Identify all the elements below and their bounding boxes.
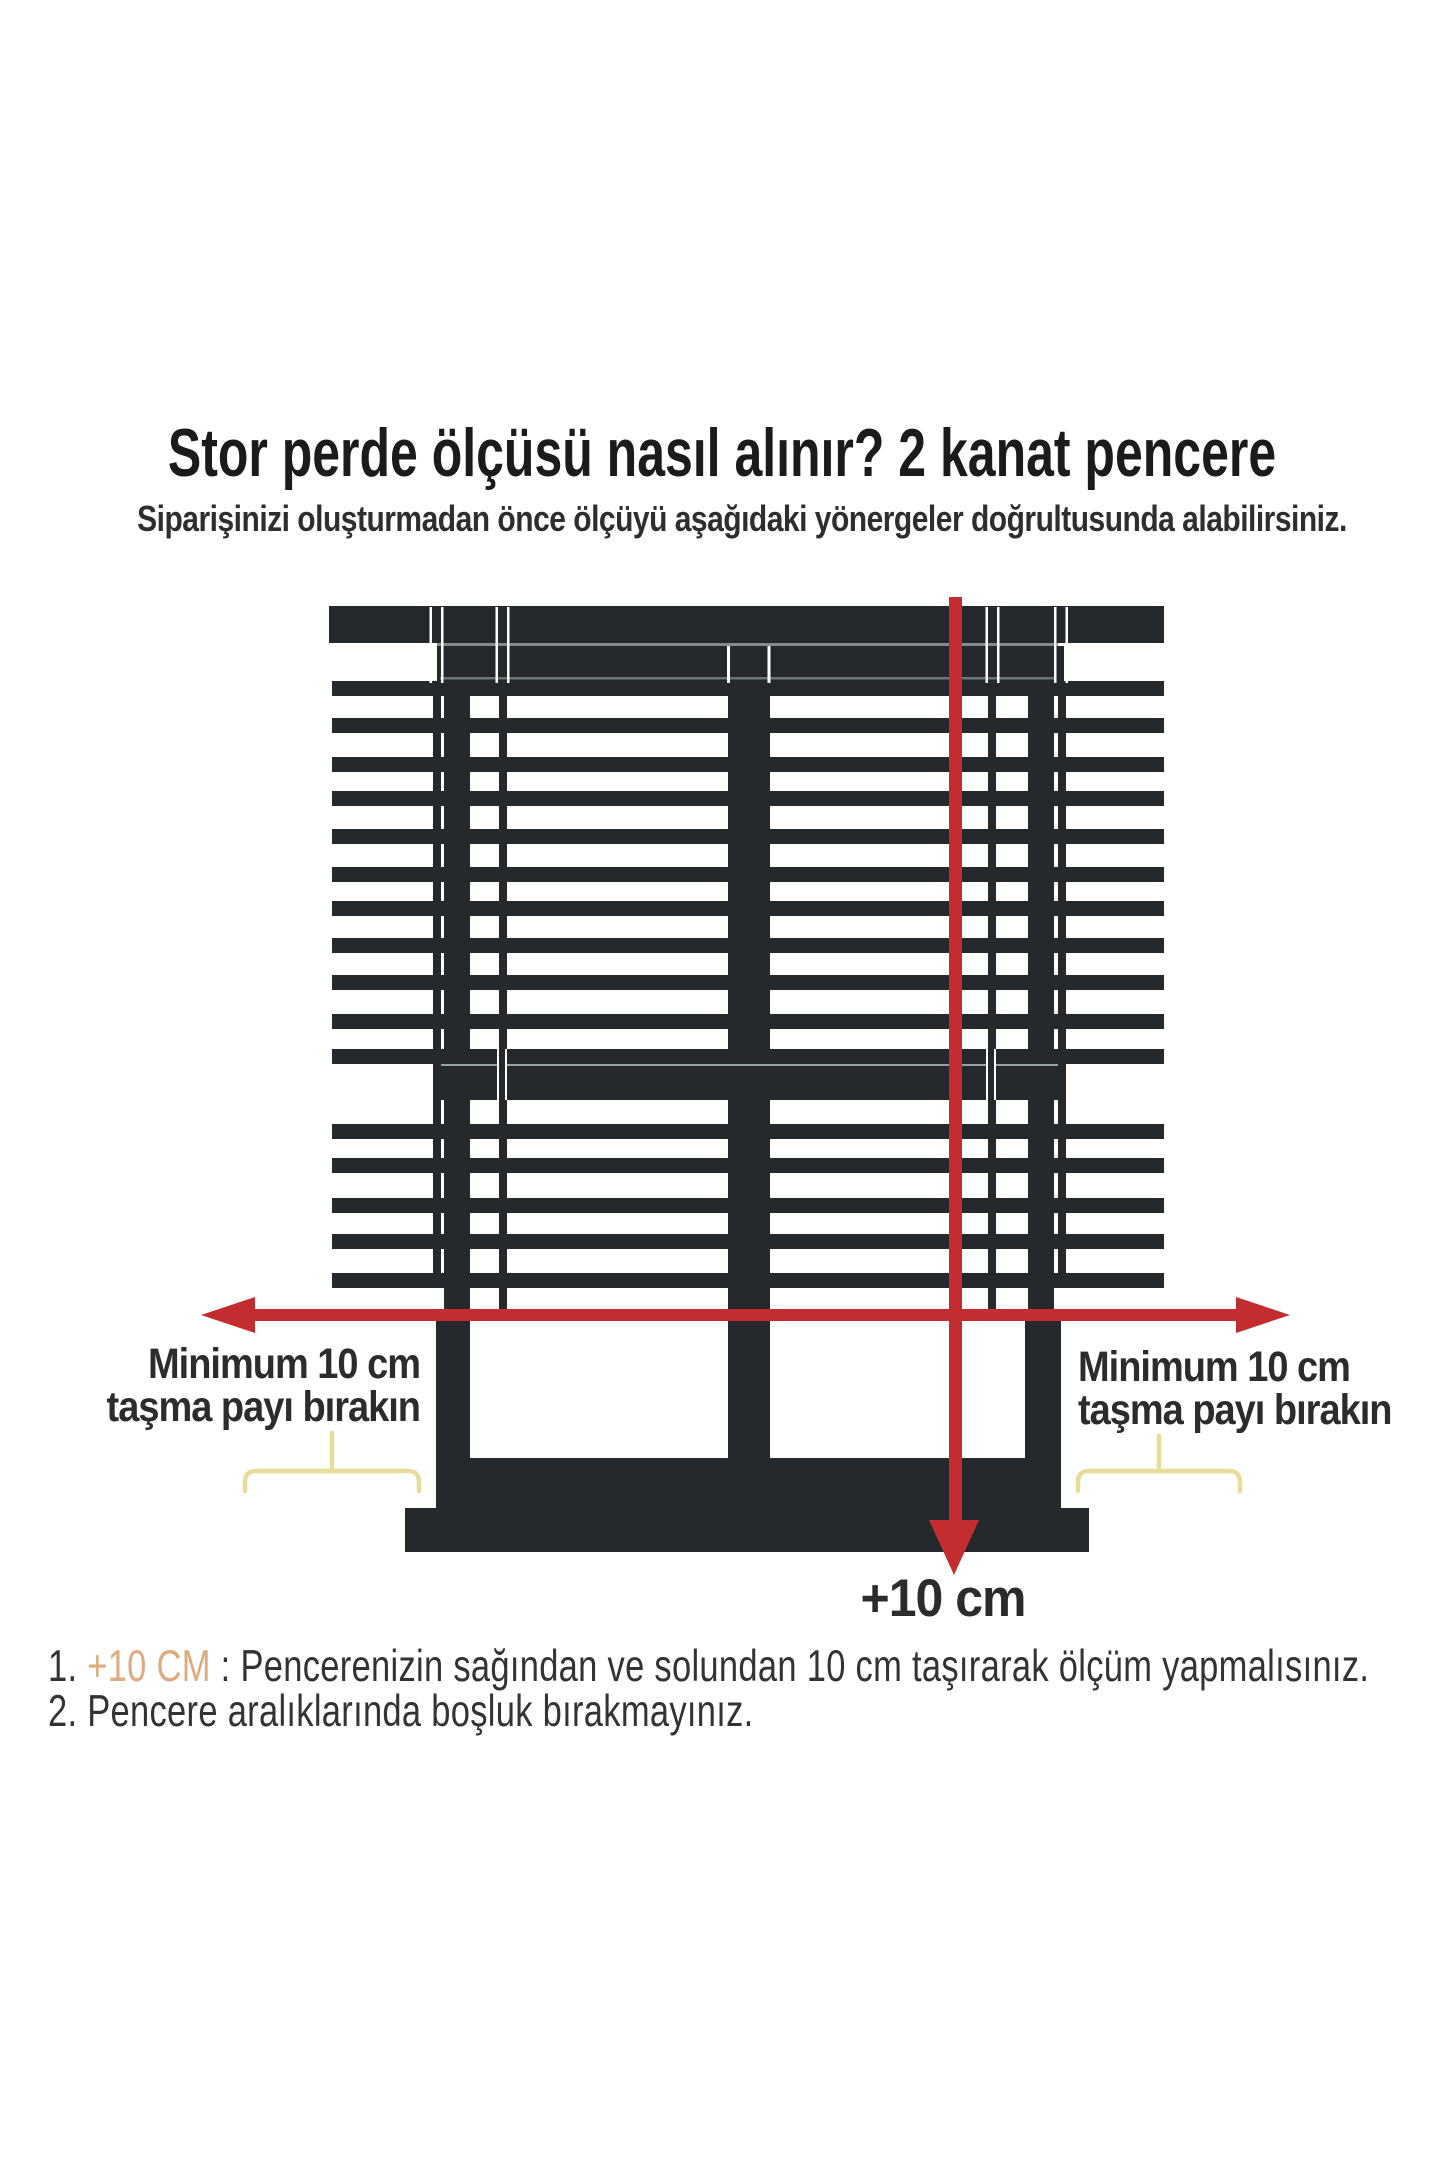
- svg-text:2. Pencere aralıklarında boşlu: 2. Pencere aralıklarında boşluk bırakmay…: [48, 1687, 754, 1736]
- svg-text:Stor perde ölçüsü nasıl alınır: Stor perde ölçüsü nasıl alınır? 2 kanat …: [168, 415, 1276, 491]
- svg-text:taşma payı bırakın: taşma payı bırakın: [107, 1382, 420, 1431]
- svg-text:Minimum 10 cm: Minimum 10 cm: [148, 1339, 420, 1388]
- svg-text:1. +10 CM : Pencerenizin sağın: 1. +10 CM : Pencerenizin sağından ve sol…: [48, 1642, 1369, 1691]
- svg-text:Minimum 10 cm: Minimum 10 cm: [1078, 1342, 1350, 1391]
- svg-text:+10 cm: +10 cm: [861, 1568, 1026, 1628]
- svg-text:Siparişinizi oluşturmadan önce: Siparişinizi oluşturmadan önce ölçüyü aş…: [137, 499, 1347, 539]
- svg-text:taşma payı bırakın: taşma payı bırakın: [1078, 1385, 1391, 1434]
